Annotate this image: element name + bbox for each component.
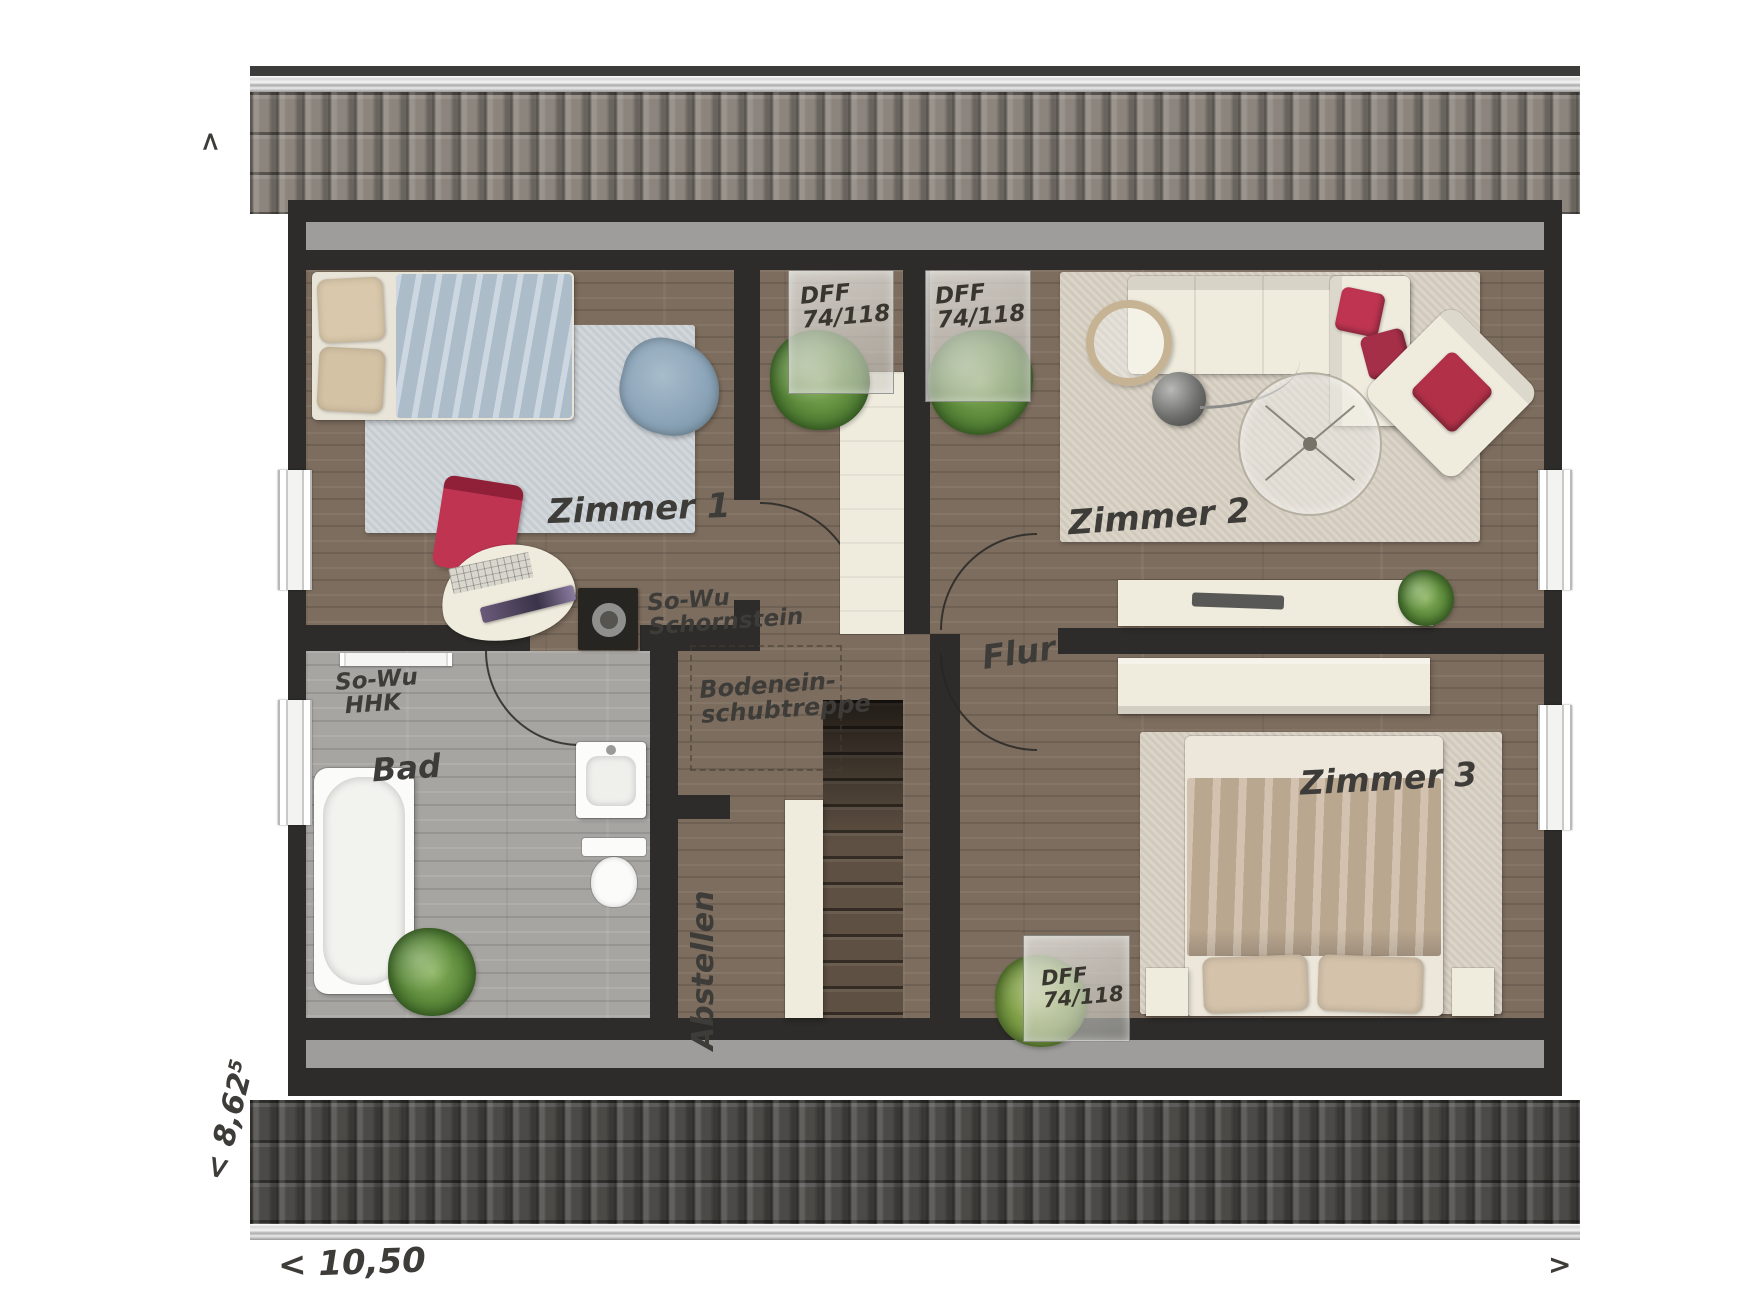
roof-top-gutter [250, 76, 1580, 92]
sink [576, 742, 646, 818]
knee-band-top [306, 222, 1544, 250]
roof-bottom-tiles [250, 1100, 1580, 1224]
door-panel-abstellen [785, 800, 823, 1018]
bed3-blanket [1187, 778, 1441, 956]
skylight-3: DFF 74/118 [1023, 935, 1130, 1042]
wall-abstellen-left [650, 651, 678, 1018]
skylight-2: DFF 74/118 [925, 270, 1031, 402]
heater-label: So-Wu HHK [334, 665, 420, 719]
wall-zimmer1-right-upper [734, 270, 760, 500]
window-right-1 [1538, 470, 1572, 590]
room-label-zimmer3: Zimmer 3 [1299, 757, 1478, 801]
room-label-zimmer1: Zimmer 1 [547, 489, 731, 531]
bed3-pillow-left [1202, 954, 1309, 1014]
plant-sideboard [1398, 570, 1454, 626]
bed-zimmer1 [312, 272, 574, 420]
sink-faucet-icon [606, 745, 616, 755]
dimension-arrow-top: > [197, 131, 224, 153]
wardrobe-zimmer3 [1118, 658, 1430, 714]
window-right-2 [1538, 705, 1572, 830]
sofa-red-pillow-1 [1334, 286, 1386, 338]
chimney-ring-icon [592, 603, 626, 637]
roof-top-ridge [250, 66, 1580, 76]
window-left-2 [278, 700, 312, 825]
bed1-pillow-bottom [316, 346, 385, 413]
skylight-2-label: DFF 74/118 [934, 277, 1026, 333]
skylight-1-label: DFF 74/118 [799, 277, 891, 333]
floor-lamp-zimmer2 [1152, 372, 1206, 426]
room-label-bad: Bad [371, 750, 442, 788]
roof-bottom-gutter [250, 1224, 1580, 1240]
bed3-pillow-right [1317, 954, 1424, 1014]
skylight-3-label: DFF 74/118 [1040, 961, 1124, 1012]
bench-zimmer3-right [1452, 968, 1494, 1016]
wall-zimmer2-zimmer3 [1058, 628, 1544, 654]
wall-abstellen-top [650, 795, 730, 819]
bed1-blanket [396, 274, 572, 418]
sink-bowl [586, 756, 636, 806]
bed1-pillow-top [316, 276, 385, 343]
coffee-table-hub [1303, 437, 1317, 451]
room-label-abstellen: Abstellen [688, 900, 722, 1050]
window-left-1 [278, 470, 312, 590]
bench-zimmer3-left [1146, 968, 1188, 1016]
toilet [582, 838, 646, 910]
floor-plan: DFF 74/118 DFF 74/118 DFF 74/118 [0, 0, 1754, 1316]
plant-bad [388, 928, 476, 1016]
heater [340, 653, 452, 666]
toilet-bowl [591, 857, 637, 907]
knee-band-bottom [306, 1040, 1544, 1068]
dimension-width: < 10,50 [277, 1243, 426, 1284]
side-table-zimmer2 [1086, 300, 1172, 386]
dimension-arrow-right: > [1548, 1250, 1571, 1279]
chimney-label: So-Wu Schornstein [647, 581, 805, 640]
coffee-table-zimmer2 [1238, 372, 1382, 516]
roof-top-tiles [250, 92, 1580, 214]
toilet-tank [582, 838, 646, 856]
skylight-1: DFF 74/118 [788, 270, 894, 394]
